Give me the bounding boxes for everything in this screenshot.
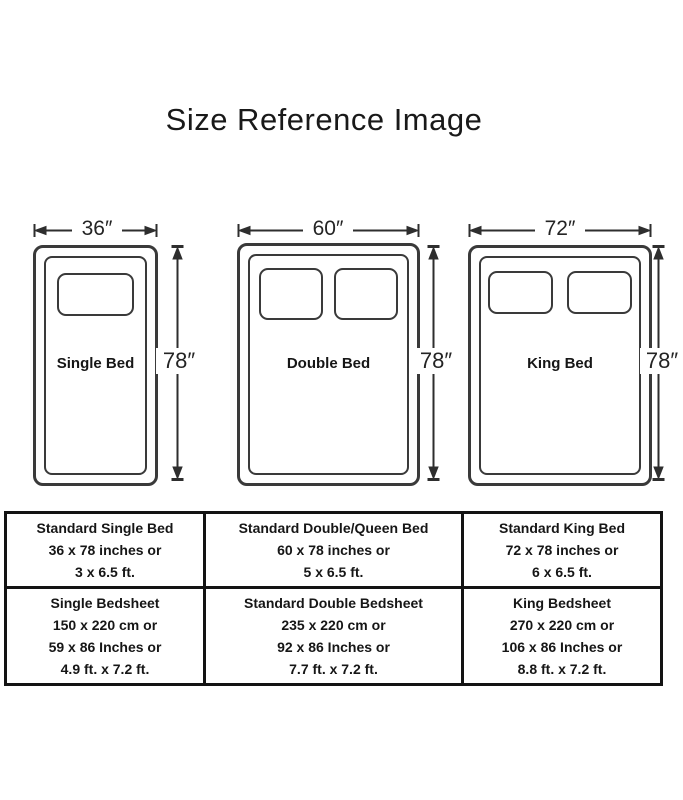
table-cell-single-bedsheet: Single Bedsheet 150 x 220 cm or 59 x 86 … xyxy=(6,588,205,685)
double-bed-pillow-left xyxy=(259,268,323,320)
double-bed-height-label: 78″ xyxy=(413,348,459,374)
size-table: Standard Single Bed 36 x 78 inches or 3 … xyxy=(4,511,663,686)
single-bed-width-label: 36″ xyxy=(72,216,122,242)
table-cell-double-bed: Standard Double/Queen Bed 60 x 78 inches… xyxy=(205,513,463,588)
king-bed-pillow-left xyxy=(488,271,553,314)
table-cell-king-bedsheet: King Bedsheet 270 x 220 cm or 106 x 86 I… xyxy=(463,588,662,685)
king-bed-label: King Bed xyxy=(468,355,652,372)
single-bed-height-label: 78″ xyxy=(156,348,202,374)
table-cell-single-bed: Standard Single Bed 36 x 78 inches or 3 … xyxy=(6,513,205,588)
king-bed-width-label: 72″ xyxy=(535,216,585,242)
table-cell-king-bed: Standard King Bed 72 x 78 inches or 6 x … xyxy=(463,513,662,588)
size-reference-page: Size Reference Image 36″ Single Bed 78″ … xyxy=(0,0,683,800)
king-bed-pillow-right xyxy=(567,271,632,314)
single-bed-pillow xyxy=(57,273,134,316)
table-row-bed-sizes: Standard Single Bed 36 x 78 inches or 3 … xyxy=(6,513,662,588)
single-bed-label: Single Bed xyxy=(33,355,158,372)
table-cell-double-bedsheet: Standard Double Bedsheet 235 x 220 cm or… xyxy=(205,588,463,685)
king-bed-height-label: 78″ xyxy=(640,348,683,374)
double-bed-label: Double Bed xyxy=(237,355,420,372)
page-title: Size Reference Image xyxy=(0,102,648,138)
double-bed-width-label: 60″ xyxy=(303,216,353,242)
double-bed-pillow-right xyxy=(334,268,398,320)
table-row-bedsheet-sizes: Single Bedsheet 150 x 220 cm or 59 x 86 … xyxy=(6,588,662,685)
